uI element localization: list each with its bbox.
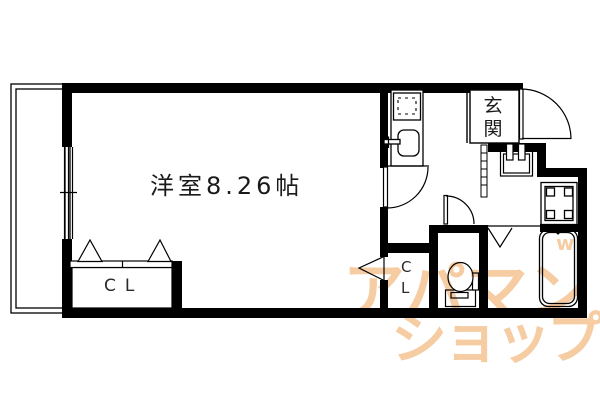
wall-top — [62, 83, 523, 93]
closet-door-triangle-right — [148, 240, 171, 262]
balcony-outer-line — [11, 84, 70, 313]
floorplan-canvas: 洋室8.26帖 玄関 CL CL アパマン w ショップ — [0, 0, 600, 400]
room-label: 洋室8.26帖 — [150, 166, 303, 201]
toilet-icon — [446, 263, 479, 307]
stove-icon — [394, 93, 421, 120]
toilet-tank-detail — [451, 293, 468, 299]
wall-hall-closet-divider — [380, 243, 434, 253]
wall-right-outer — [578, 168, 587, 318]
sink-icon — [398, 130, 419, 156]
closet-door-triangle-left — [78, 240, 102, 262]
balcony — [11, 84, 70, 313]
wall-toilet-left — [429, 225, 438, 312]
hall-cabinet — [481, 145, 487, 197]
faucet-icon — [384, 140, 400, 145]
balcony-inner-line — [16, 89, 65, 308]
tap-right-icon — [519, 144, 526, 160]
window-sliding-door — [60, 147, 77, 239]
kitchen-unit — [384, 90, 423, 166]
bathroom-folding-door — [487, 226, 540, 247]
wall-bottom — [62, 308, 587, 318]
room-door — [384, 166, 430, 208]
wall-room-right-lower — [380, 280, 388, 312]
closet-main-label: CL — [104, 276, 143, 296]
closet-main — [70, 240, 172, 308]
entrance-door — [520, 89, 572, 139]
wall-closet-main-right — [172, 261, 182, 311]
closet-hall-label: CL — [401, 257, 417, 299]
closet-hall-door-icon — [359, 257, 384, 281]
entrance-label: 玄関 — [482, 95, 504, 141]
wall-bath-left — [479, 225, 488, 312]
bathtub-icon — [540, 230, 578, 307]
toilet-bowl — [448, 263, 473, 292]
wall-room-right-upper — [380, 83, 388, 168]
tap-left-icon — [507, 144, 514, 160]
utility-fixture — [541, 183, 577, 225]
toilet-door — [444, 196, 474, 225]
